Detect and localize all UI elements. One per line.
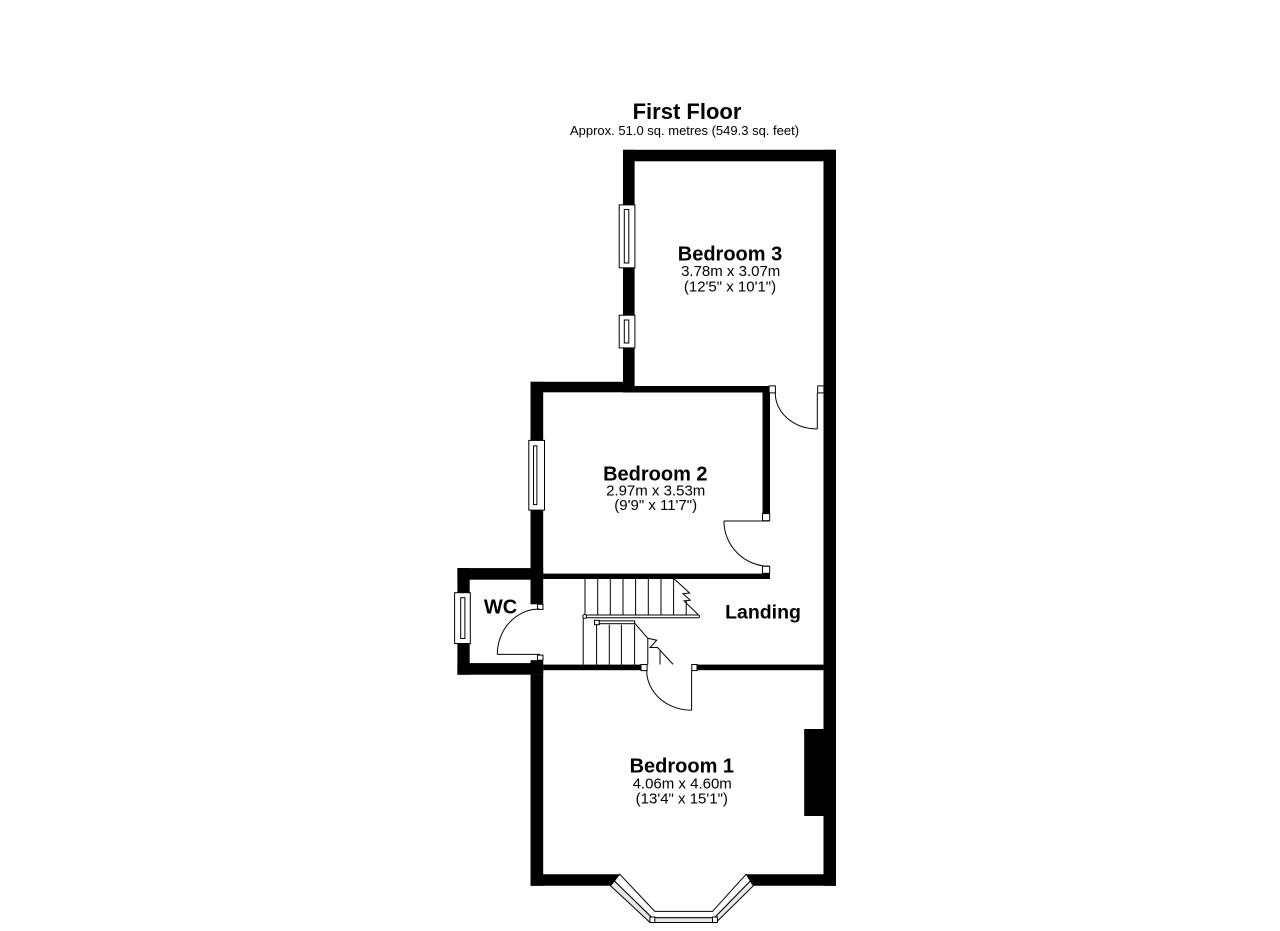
svg-text:(12'5" x 10'1"): (12'5" x 10'1") [684,279,776,296]
svg-text:3.78m x 3.07m: 3.78m x 3.07m [681,263,780,280]
svg-text:Bedroom 3: Bedroom 3 [678,243,782,265]
svg-text:WC: WC [484,597,517,619]
svg-text:Approx. 51.0 sq. metres (549.3: Approx. 51.0 sq. metres (549.3 sq. feet) [570,123,799,138]
svg-text:(13'4" x 15'1"): (13'4" x 15'1") [636,790,728,807]
svg-text:First Floor: First Floor [633,99,742,124]
svg-text:Bedroom 1: Bedroom 1 [630,756,734,778]
svg-text:Landing: Landing [725,602,801,624]
svg-text:(9'9" x 11'7"): (9'9" x 11'7") [614,497,697,514]
